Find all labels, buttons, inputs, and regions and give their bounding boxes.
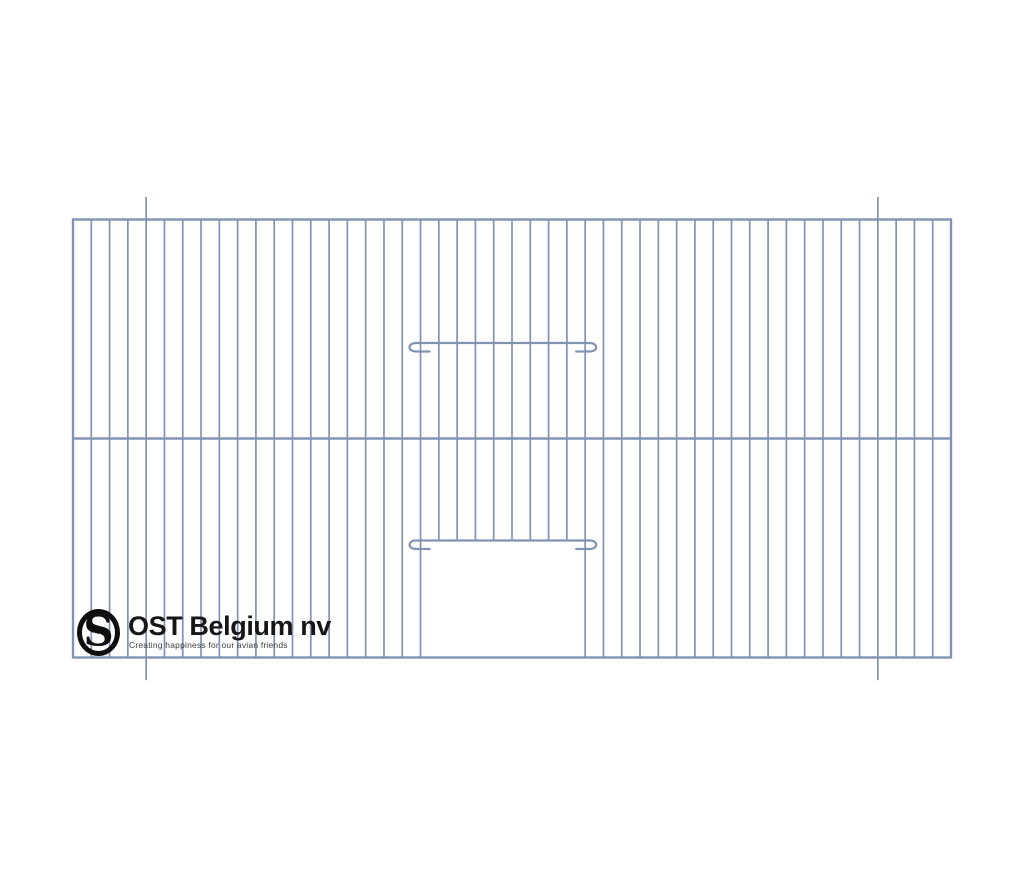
door-slider-hook-bar [410,343,597,352]
door-slider-hook-bar [410,541,597,550]
cage-front-svg [0,0,1024,878]
drawing-canvas: S T OST Belgium nv Creating happiness fo… [0,0,1024,878]
